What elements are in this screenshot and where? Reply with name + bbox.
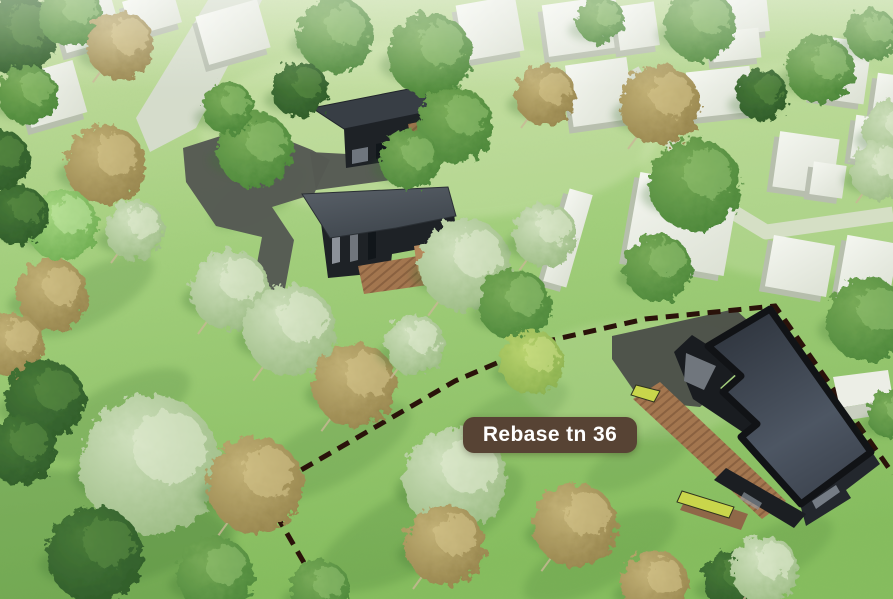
- tree-highlight: [326, 5, 366, 45]
- tree-highlight: [21, 72, 52, 103]
- tree-highlight: [112, 18, 147, 53]
- house-part: [352, 147, 368, 164]
- building-roof: [765, 235, 835, 297]
- tree-highlight: [206, 545, 246, 585]
- tree-highlight: [538, 72, 569, 103]
- tree-highlight: [246, 120, 286, 160]
- tree-highlight: [420, 22, 464, 66]
- tree-highlight: [565, 492, 609, 536]
- tree-highlight: [403, 137, 434, 168]
- tree-highlight: [128, 207, 159, 238]
- tree-highlight: [537, 210, 570, 243]
- tree-highlight: [95, 134, 137, 176]
- plot-label[interactable]: Rebase tn 36: [463, 417, 637, 453]
- tree-highlight: [53, 197, 90, 234]
- tree-highlight: [524, 338, 557, 371]
- tree-highlight: [293, 68, 322, 97]
- tree-highlight: [222, 88, 249, 115]
- tree-highlight: [12, 423, 48, 459]
- site-render: [0, 0, 893, 599]
- tree-highlight: [83, 518, 133, 568]
- building-roof: [809, 161, 846, 198]
- tree-highlight: [446, 95, 486, 135]
- neighbor-building: [804, 161, 847, 205]
- tree-highlight: [133, 410, 206, 483]
- tree-highlight: [647, 558, 682, 593]
- tree-highlight: [4, 320, 37, 353]
- tree-highlight: [313, 567, 344, 598]
- tree-highlight: [435, 514, 477, 556]
- tree-highlight: [594, 1, 619, 26]
- plot-label-text: Rebase tn 36: [483, 423, 617, 447]
- tree-highlight: [220, 259, 262, 301]
- tree-highlight: [866, 15, 893, 42]
- tree-highlight: [650, 241, 685, 276]
- tree-highlight: [35, 369, 77, 411]
- tree-highlight: [408, 322, 439, 353]
- aerial-site-view: Rebase tn 36: [0, 0, 893, 599]
- tree-highlight: [279, 294, 327, 342]
- tree: [0, 65, 58, 125]
- neighbor-building: [759, 234, 835, 303]
- tree-highlight: [243, 448, 293, 498]
- tree-highlight: [506, 277, 543, 314]
- tree-highlight: [11, 192, 42, 223]
- tree-highlight: [757, 543, 792, 578]
- tree-highlight: [454, 229, 502, 277]
- tree-highlight: [43, 267, 80, 304]
- tree-highlight: [650, 74, 692, 116]
- tree-highlight: [684, 149, 732, 197]
